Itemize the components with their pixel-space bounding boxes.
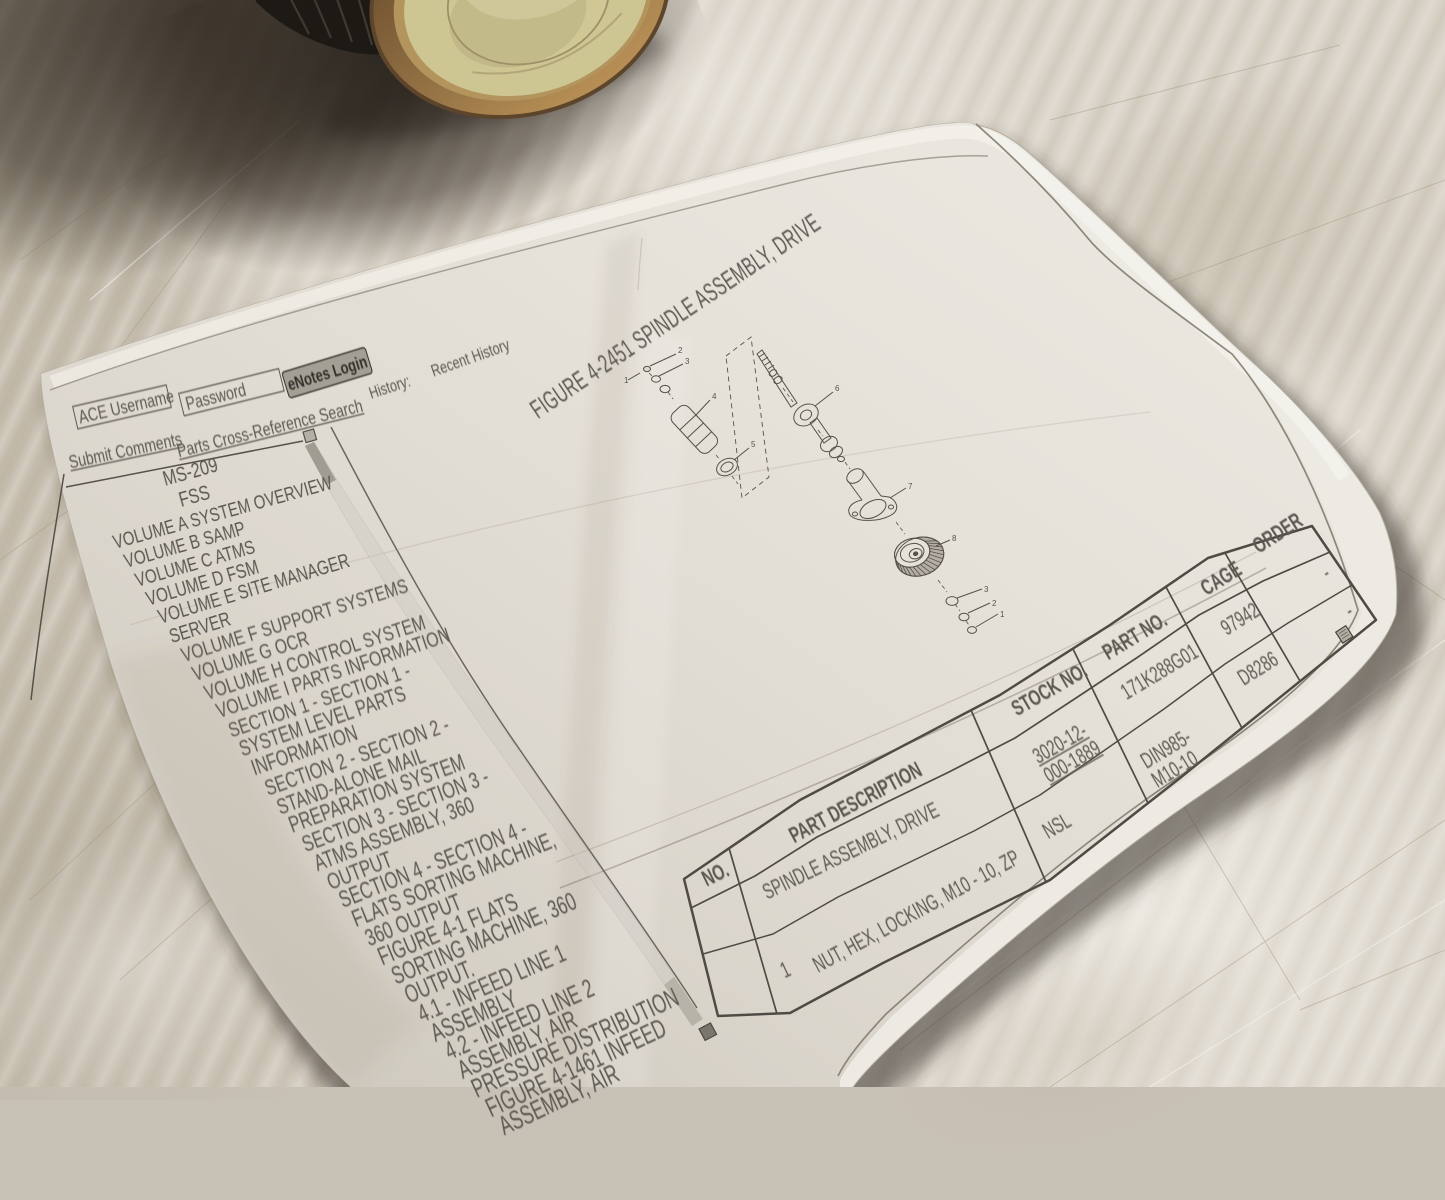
svg-text:2: 2	[992, 599, 997, 608]
svg-text:8: 8	[952, 534, 957, 543]
svg-text:5: 5	[751, 440, 756, 449]
svg-text:3: 3	[685, 357, 690, 366]
svg-text:7: 7	[908, 482, 913, 491]
svg-text:1: 1	[624, 376, 629, 385]
svg-text:6: 6	[835, 384, 840, 393]
svg-text:1: 1	[1000, 610, 1005, 619]
svg-text:2: 2	[678, 346, 683, 355]
svg-text:4: 4	[712, 392, 717, 401]
svg-text:3: 3	[984, 585, 989, 594]
